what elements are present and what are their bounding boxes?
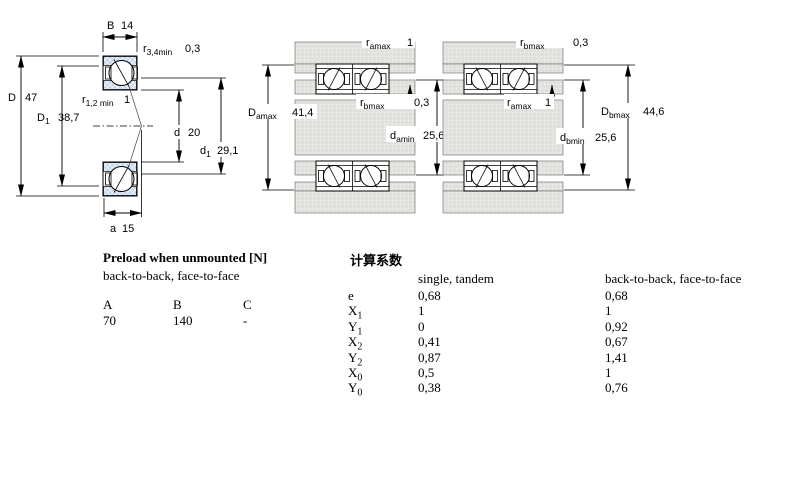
dim-label-r12: r1,2 min1 <box>82 94 130 108</box>
factor-row-x2: X2 0,41 0,67 <box>345 334 755 349</box>
preload-col-b: B <box>173 297 243 313</box>
preload-value-a: 70 <box>103 313 173 329</box>
preload-header-row: A B C <box>103 297 343 313</box>
bearing-datasheet-page: { "colors": { "ring_blue": "#c3d4ea", "m… <box>0 0 800 500</box>
factors-col-btb-header: back-to-back, face-to-face <box>605 271 741 287</box>
dim-label-r34: r3,4min0,3 <box>143 43 200 57</box>
factor-row-y2: Y2 0,87 1,41 <box>345 350 755 365</box>
dim-label-B: B14 <box>107 20 133 32</box>
dim-label-D: D47 <box>8 92 37 104</box>
calculation-factors-table: 计算系数 single, tandem back-to-back, face-t… <box>345 250 755 400</box>
preload-value-b: 140 <box>173 313 243 329</box>
bearing-pair-bottom-b <box>464 161 537 191</box>
dim-label-d1: d129,1 <box>200 145 238 159</box>
single-bearing-drawing: B14 r3,4min0,3 D47 D138,7 r1,2 min1 d20 … <box>8 20 245 235</box>
housing-bottom <box>295 191 415 213</box>
mounted-pair-drawing-a: Damax41,4 damin25,6 ramax1 rbmax0,3 <box>245 34 450 213</box>
factors-title: 计算系数 <box>350 250 402 269</box>
preload-table: Preload when unmounted [N] back-to-back,… <box>103 250 343 328</box>
mounted-pair-drawing-b: dbmin25,6 Dbmax44,6 rbmax0,3 ramax1 <box>443 34 669 213</box>
dim-label-d: d20 <box>174 127 200 139</box>
preload-value-row: 70 140 - <box>103 313 343 329</box>
preload-value-c: - <box>243 313 313 329</box>
dim-label-a: a15 <box>110 223 134 235</box>
preload-subtitle: back-to-back, face-to-face <box>103 268 343 284</box>
preload-col-a: A <box>103 297 173 313</box>
housing-bottom-b <box>443 191 563 213</box>
contact-extension-top <box>129 87 142 127</box>
bearing-pair-bottom <box>316 161 389 191</box>
factor-row-y0: Y0 0,38 0,76 <box>345 380 755 395</box>
factor-row-x0: X0 0,5 1 <box>345 365 755 380</box>
bearing-pair-top-b <box>464 64 537 94</box>
preload-title: Preload when unmounted [N] <box>103 250 343 266</box>
factor-row-y1: Y1 0 0,92 <box>345 319 755 334</box>
factors-col-single-header: single, tandem <box>418 271 494 287</box>
factor-row-x1: X1 1 1 <box>345 303 755 318</box>
factor-row-e: e 0,68 0,68 <box>345 288 755 303</box>
contact-extension-bottom <box>129 126 142 166</box>
bearing-drawings: B14 r3,4min0,3 D47 D138,7 r1,2 min1 d20 … <box>0 0 700 245</box>
bearing-pair-top <box>316 64 389 94</box>
shaft-shoulder-left <box>295 80 316 94</box>
preload-col-c: C <box>243 297 313 313</box>
shaft-shoulder-right <box>389 80 415 94</box>
dim-label-D1: D138,7 <box>37 112 79 126</box>
